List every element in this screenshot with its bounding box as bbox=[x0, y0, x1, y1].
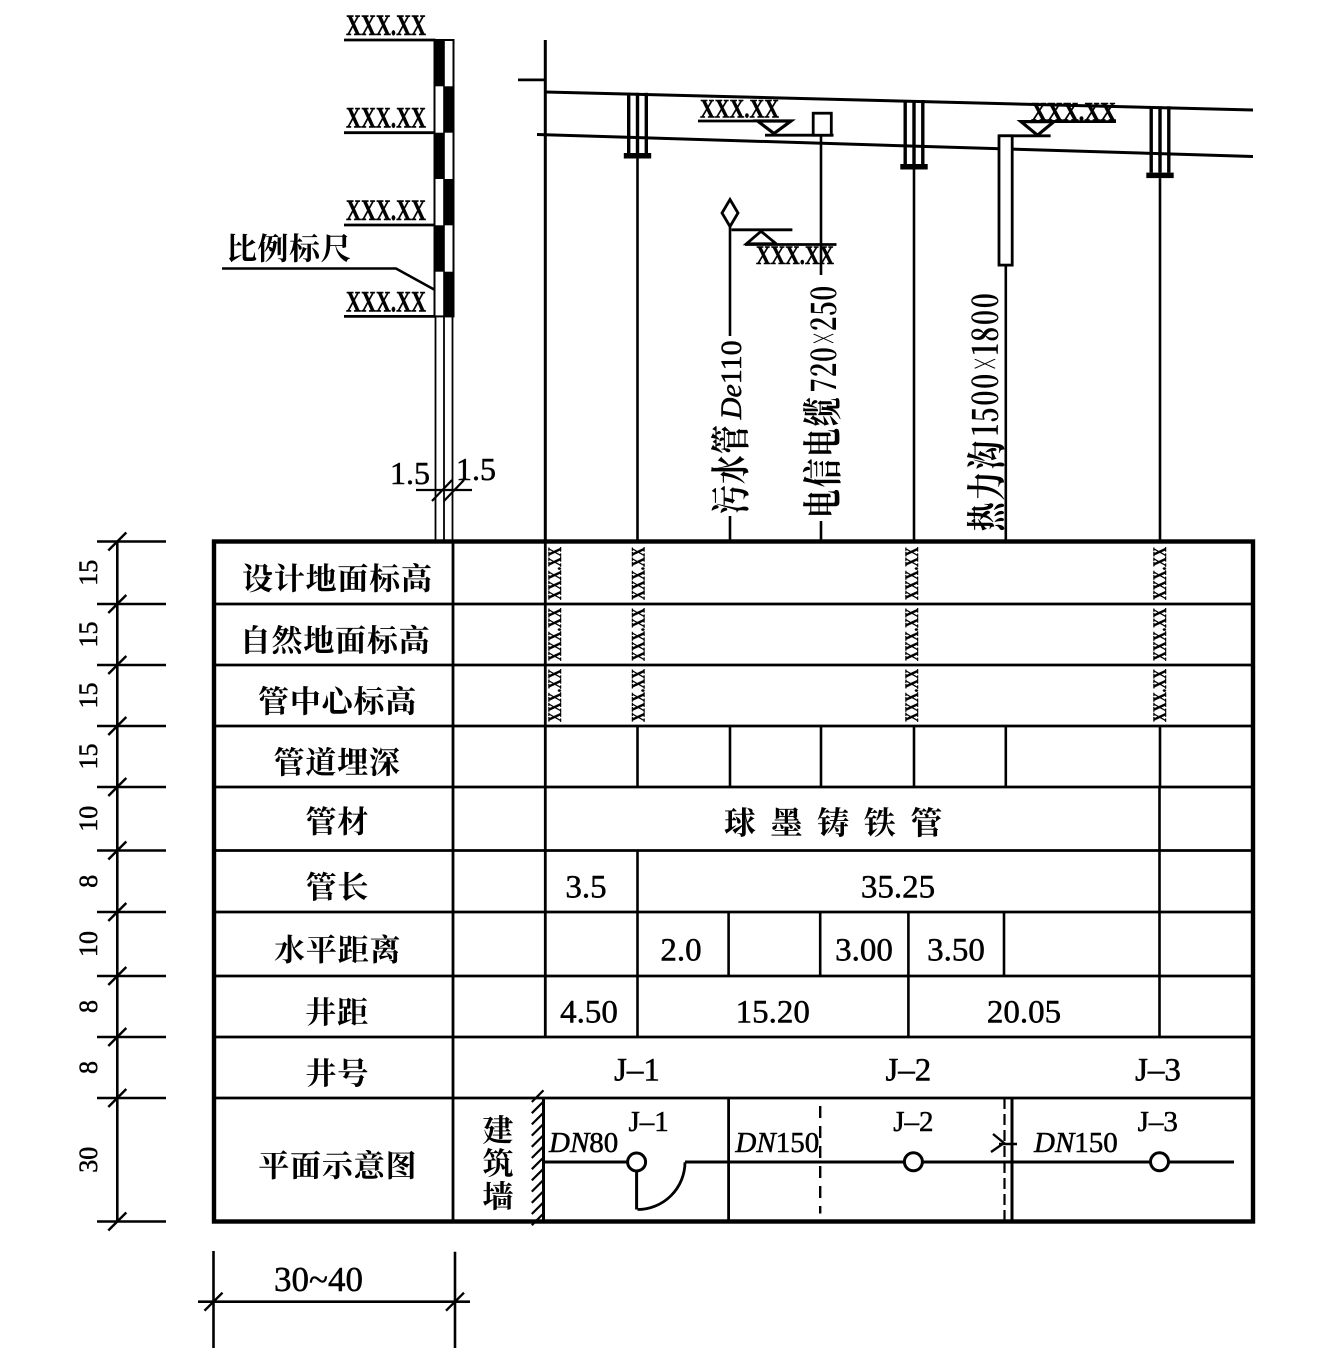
svg-text:3.00: 3.00 bbox=[835, 933, 893, 969]
svg-text:15: 15 bbox=[74, 744, 103, 770]
svg-text:1.5: 1.5 bbox=[390, 455, 430, 491]
svg-text:15: 15 bbox=[74, 683, 103, 709]
svg-text:35.25: 35.25 bbox=[861, 870, 935, 906]
svg-text:J–1: J–1 bbox=[614, 1053, 660, 1089]
svg-text:XXX.XX: XXX.XX bbox=[346, 285, 426, 318]
svg-text:XXX.XX: XXX.XX bbox=[902, 669, 923, 722]
svg-text:2.0: 2.0 bbox=[660, 933, 701, 969]
svg-text:8: 8 bbox=[74, 1061, 103, 1074]
svg-text:DN150: DN150 bbox=[734, 1127, 819, 1159]
svg-text:XXX.XX: XXX.XX bbox=[629, 547, 650, 600]
svg-text:XXX.XX: XXX.XX bbox=[902, 547, 923, 600]
svg-text:15: 15 bbox=[74, 622, 103, 648]
svg-text:XXX.XX: XXX.XX bbox=[545, 547, 566, 600]
svg-text:4.50: 4.50 bbox=[560, 995, 618, 1031]
svg-text:J–2: J–2 bbox=[885, 1053, 931, 1089]
svg-text:10: 10 bbox=[74, 806, 103, 832]
svg-text:DN150: DN150 bbox=[1033, 1127, 1118, 1159]
svg-text:DN80: DN80 bbox=[548, 1127, 618, 1159]
svg-text:XXX.XX: XXX.XX bbox=[545, 669, 566, 722]
svg-text:XXX.XX: XXX.XX bbox=[902, 608, 923, 661]
svg-text:XXX.XX: XXX.XX bbox=[756, 241, 834, 270]
svg-text:30~40: 30~40 bbox=[274, 1260, 363, 1299]
svg-text:XXX.XX: XXX.XX bbox=[545, 608, 566, 661]
svg-text:15: 15 bbox=[74, 560, 103, 586]
svg-text:J–2: J–2 bbox=[893, 1106, 933, 1138]
svg-text:XXX.XX: XXX.XX bbox=[346, 194, 426, 227]
svg-text:10: 10 bbox=[74, 931, 103, 957]
svg-text:XXX.XX: XXX.XX bbox=[629, 669, 650, 722]
svg-text:De110: De110 bbox=[715, 340, 748, 420]
svg-text:XXX.XX: XXX.XX bbox=[1150, 608, 1171, 661]
svg-text:XXX.XX: XXX.XX bbox=[629, 608, 650, 661]
svg-text:J–1: J–1 bbox=[628, 1106, 668, 1138]
svg-text:XXX.XX: XXX.XX bbox=[346, 9, 426, 42]
svg-text:XXX.XX: XXX.XX bbox=[1150, 547, 1171, 600]
svg-text:XXX.XX: XXX.XX bbox=[1150, 669, 1171, 722]
svg-text:J–3: J–3 bbox=[1138, 1106, 1178, 1138]
svg-text:20.05: 20.05 bbox=[987, 995, 1061, 1031]
svg-text:XXX.XX: XXX.XX bbox=[700, 95, 779, 124]
svg-text:8: 8 bbox=[74, 1000, 103, 1013]
svg-text:15.20: 15.20 bbox=[736, 995, 810, 1031]
svg-text:3.50: 3.50 bbox=[927, 933, 985, 969]
svg-text:J–3: J–3 bbox=[1135, 1053, 1181, 1089]
svg-text:8: 8 bbox=[74, 875, 103, 888]
svg-text:3.5: 3.5 bbox=[565, 870, 606, 906]
svg-text:30: 30 bbox=[74, 1147, 103, 1173]
svg-text:XXX.XX: XXX.XX bbox=[346, 102, 426, 135]
